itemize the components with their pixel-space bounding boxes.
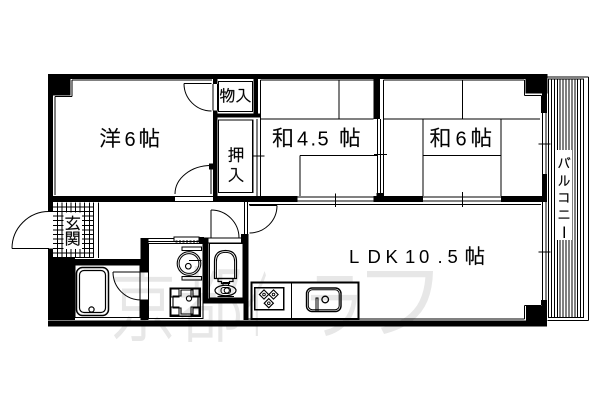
svg-text:4: 4 [297,129,308,151]
svg-text:6: 6 [456,129,467,151]
svg-text:5: 5 [448,246,458,267]
svg-text:5: 5 [318,129,329,151]
svg-text:1: 1 [405,246,415,267]
svg-text:L: L [349,246,359,267]
svg-text:6: 6 [125,129,136,151]
svg-text:K: K [386,246,399,267]
svg-text:0: 0 [419,246,429,267]
svg-text:.: . [311,129,317,151]
svg-text:D: D [368,246,381,267]
svg-text:.: . [438,246,443,267]
